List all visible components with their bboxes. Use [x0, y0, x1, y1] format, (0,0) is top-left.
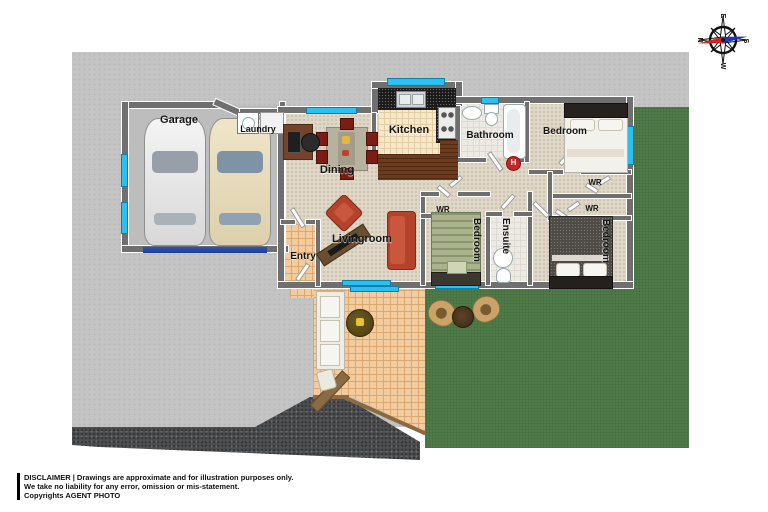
office-chair	[301, 133, 320, 152]
kitchen-sink	[396, 91, 426, 108]
garage-door	[143, 247, 267, 253]
room-label-kitchen: Kitchen	[379, 124, 439, 136]
floorplan-page: H Garage Laundry Kitchen Bathroom Bedroo…	[0, 0, 768, 512]
rightwall-window	[628, 127, 633, 164]
cushion	[320, 296, 340, 318]
garage-window-1	[122, 155, 127, 186]
car-rear-window	[154, 213, 196, 225]
compass-east-label: E	[719, 14, 726, 19]
ensuite-toilet	[496, 268, 511, 283]
kitchen-window	[388, 79, 444, 85]
table-setting	[342, 136, 350, 144]
outdoor-sofa	[316, 291, 345, 370]
table-setting	[342, 150, 349, 156]
armchair-seat	[333, 202, 354, 223]
lawn-chair-seat	[478, 302, 493, 317]
room-label-entry: Entry	[283, 251, 323, 262]
garage-top-wall	[122, 102, 222, 108]
living-slider-b	[351, 287, 398, 291]
pillow	[556, 263, 580, 277]
ensuite-top-wall	[486, 212, 502, 216]
car-beige	[209, 118, 271, 246]
bed-bench	[447, 261, 467, 274]
car-windshield	[217, 151, 263, 173]
greenbedroom-top-wall-a	[421, 192, 439, 196]
cooktop	[438, 107, 456, 139]
patio-table-item	[356, 318, 364, 326]
compass-west-label: W	[719, 63, 726, 70]
car-windshield	[152, 151, 198, 173]
car-white	[144, 118, 206, 246]
kitchen-counter-corner	[440, 140, 458, 158]
room-label-bathroom: Bathroom	[460, 130, 520, 141]
topbedroom-bottom-wall-a	[529, 170, 563, 174]
ensuite-right-wall	[528, 192, 532, 285]
room-label-dining: Dining	[307, 164, 367, 176]
hot-water-marker: H	[506, 156, 521, 171]
duvet-trim	[567, 149, 624, 157]
bath-bottom-wall-a	[456, 158, 486, 162]
dining-window	[307, 108, 356, 113]
garage-window-2	[122, 203, 127, 233]
bathroom-sink	[462, 106, 482, 120]
room-label-wr-right: WR	[582, 204, 602, 213]
room-label-wr-green: WR	[433, 205, 453, 214]
pillow	[598, 119, 623, 131]
bed-top-bedroom	[564, 103, 628, 173]
headboard	[564, 103, 628, 118]
toilet-bowl	[485, 112, 498, 126]
disclaimer-line-3: Copyrights AGENT PHOTO	[24, 491, 444, 500]
car-rear-window	[219, 213, 261, 225]
sink-basin	[399, 94, 411, 105]
sink-basin	[412, 94, 424, 105]
room-label-wr-top: WR	[585, 178, 605, 187]
headboard	[431, 272, 481, 286]
disclaimer-line-2: We take no liability for any error, omis…	[24, 482, 444, 491]
room-label-bedroom-middle: Bedroom	[471, 218, 482, 262]
compass-north-label: N	[696, 37, 703, 42]
ensuite-left-wall	[486, 212, 490, 285]
dining-chair	[366, 150, 378, 164]
room-label-laundry: Laundry	[230, 124, 286, 134]
wr-divider-wall	[552, 194, 631, 198]
greenbedroom-left-wall	[421, 192, 425, 285]
laptop	[287, 131, 301, 153]
room-label-ensuite: Ensuite	[500, 218, 511, 254]
entry-top-wall-a	[281, 220, 295, 224]
disclaimer-line-1: DISCLAIMER | Drawings are approximate an…	[24, 473, 444, 482]
room-label-livingroom: Livingroom	[331, 233, 393, 245]
pillow	[583, 263, 607, 277]
patio-table	[346, 309, 374, 337]
bathroom-window	[482, 98, 498, 103]
room-label-garage: Garage	[149, 114, 209, 126]
cushion	[320, 320, 340, 342]
lawn-table	[452, 306, 474, 328]
living-slider-a	[343, 281, 390, 285]
compass-south-label: S	[742, 39, 749, 44]
ensuite-top-wall-b	[514, 212, 532, 216]
lawn-chair-seat	[434, 306, 449, 321]
compass-rose: E N S W	[693, 10, 753, 70]
greenbedroom-top-wall-b	[458, 192, 490, 196]
dining-chair	[340, 118, 354, 130]
room-label-bedroom-right: Bedroom	[600, 219, 611, 263]
dining-chair	[316, 150, 328, 164]
dining-chair	[366, 132, 378, 146]
headboard	[549, 276, 613, 289]
disclaimer-block: DISCLAIMER | Drawings are approximate an…	[17, 473, 444, 500]
porch-step	[290, 288, 314, 298]
cushion	[320, 344, 340, 366]
room-label-bedroom-top: Bedroom	[535, 126, 595, 137]
